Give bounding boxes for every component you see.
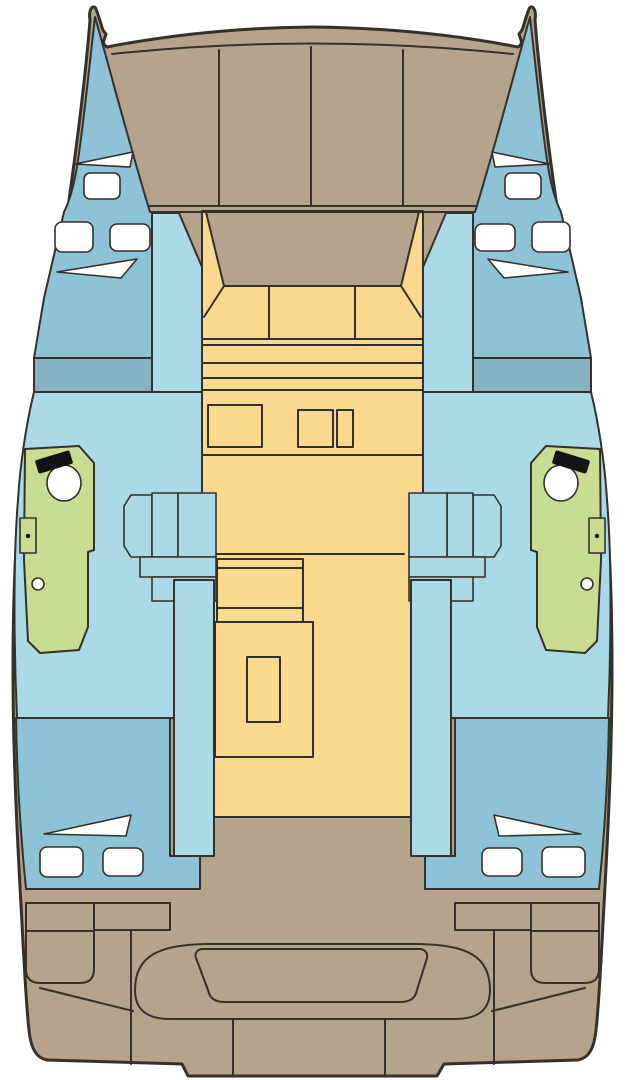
floor-plan-svg <box>0 0 625 1080</box>
dinette-seat-edge <box>217 608 303 622</box>
hull-step <box>140 557 216 577</box>
galley-stove <box>208 405 262 447</box>
hull-step <box>152 493 178 557</box>
galley-sink <box>298 410 333 447</box>
cockpit-bench-cushion <box>195 949 427 1002</box>
salon-table <box>247 657 280 722</box>
head-door <box>124 495 152 557</box>
dinette-seat-back <box>217 559 303 568</box>
toilet-bowl <box>47 465 81 501</box>
port-aft-hatch <box>103 848 143 876</box>
port-helm-step <box>94 903 170 930</box>
boat <box>13 7 612 1076</box>
port-deck-hatch <box>110 224 150 251</box>
port-bow-hatch <box>84 173 120 199</box>
dinette-seat <box>217 568 303 608</box>
counter-drain <box>26 534 30 538</box>
port-deck-hatch <box>55 222 93 252</box>
port-stern-locker <box>26 903 94 983</box>
port-aft-hatch <box>40 847 83 877</box>
hull-step <box>178 493 216 557</box>
forward-cockpit-floor <box>206 212 419 286</box>
catamaran-floor-plan <box>0 0 625 1080</box>
galley-sink-drainer <box>337 410 353 447</box>
head-sink <box>32 578 44 590</box>
port-inner-walkway <box>174 580 214 856</box>
